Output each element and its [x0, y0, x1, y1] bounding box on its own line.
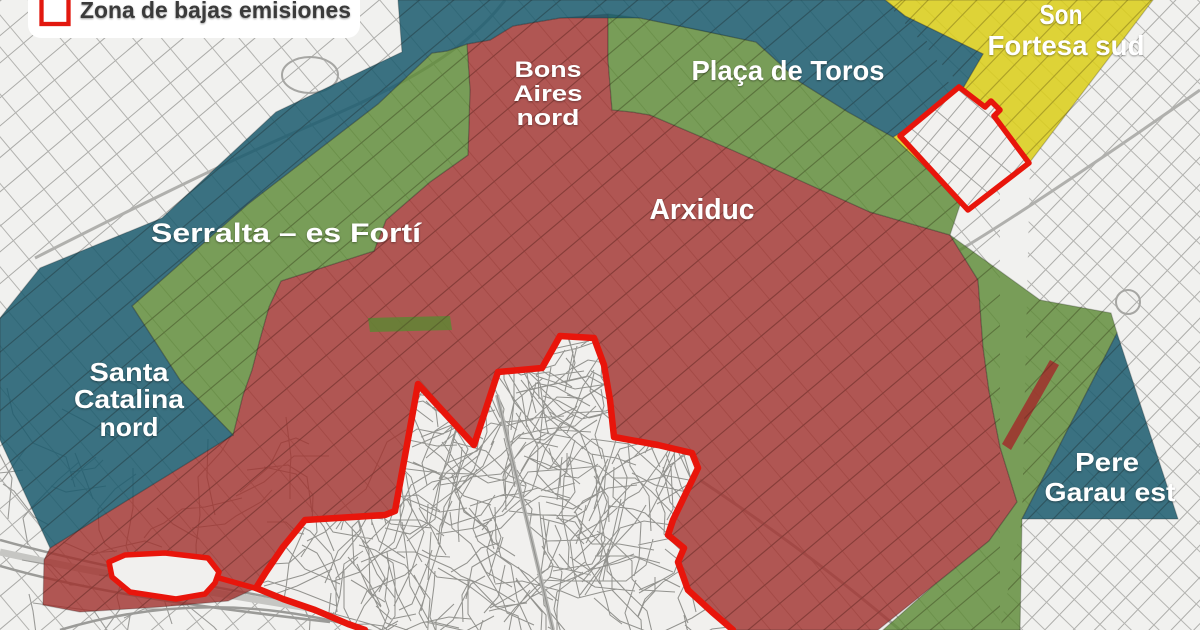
svg-text:Pere: Pere: [1075, 447, 1139, 477]
svg-text:Garau est: Garau est: [1045, 477, 1176, 507]
svg-text:Fortesa sud: Fortesa sud: [988, 30, 1145, 61]
svg-text:Plaça de Toros: Plaça de Toros: [692, 55, 885, 86]
svg-text:nord: nord: [517, 105, 580, 130]
svg-text:Aires: Aires: [514, 81, 583, 106]
svg-text:Serralta – es Fortí: Serralta – es Fortí: [151, 218, 423, 248]
svg-text:Zona de bajas emisiones: Zona de bajas emisiones: [80, 0, 351, 23]
svg-text:Bons: Bons: [515, 57, 582, 82]
svg-text:nord: nord: [100, 412, 159, 442]
svg-text:Catalina: Catalina: [74, 384, 185, 414]
svg-text:Arxiduc: Arxiduc: [650, 194, 755, 226]
svg-text:Son: Son: [1040, 0, 1083, 30]
svg-text:Santa: Santa: [90, 357, 170, 387]
